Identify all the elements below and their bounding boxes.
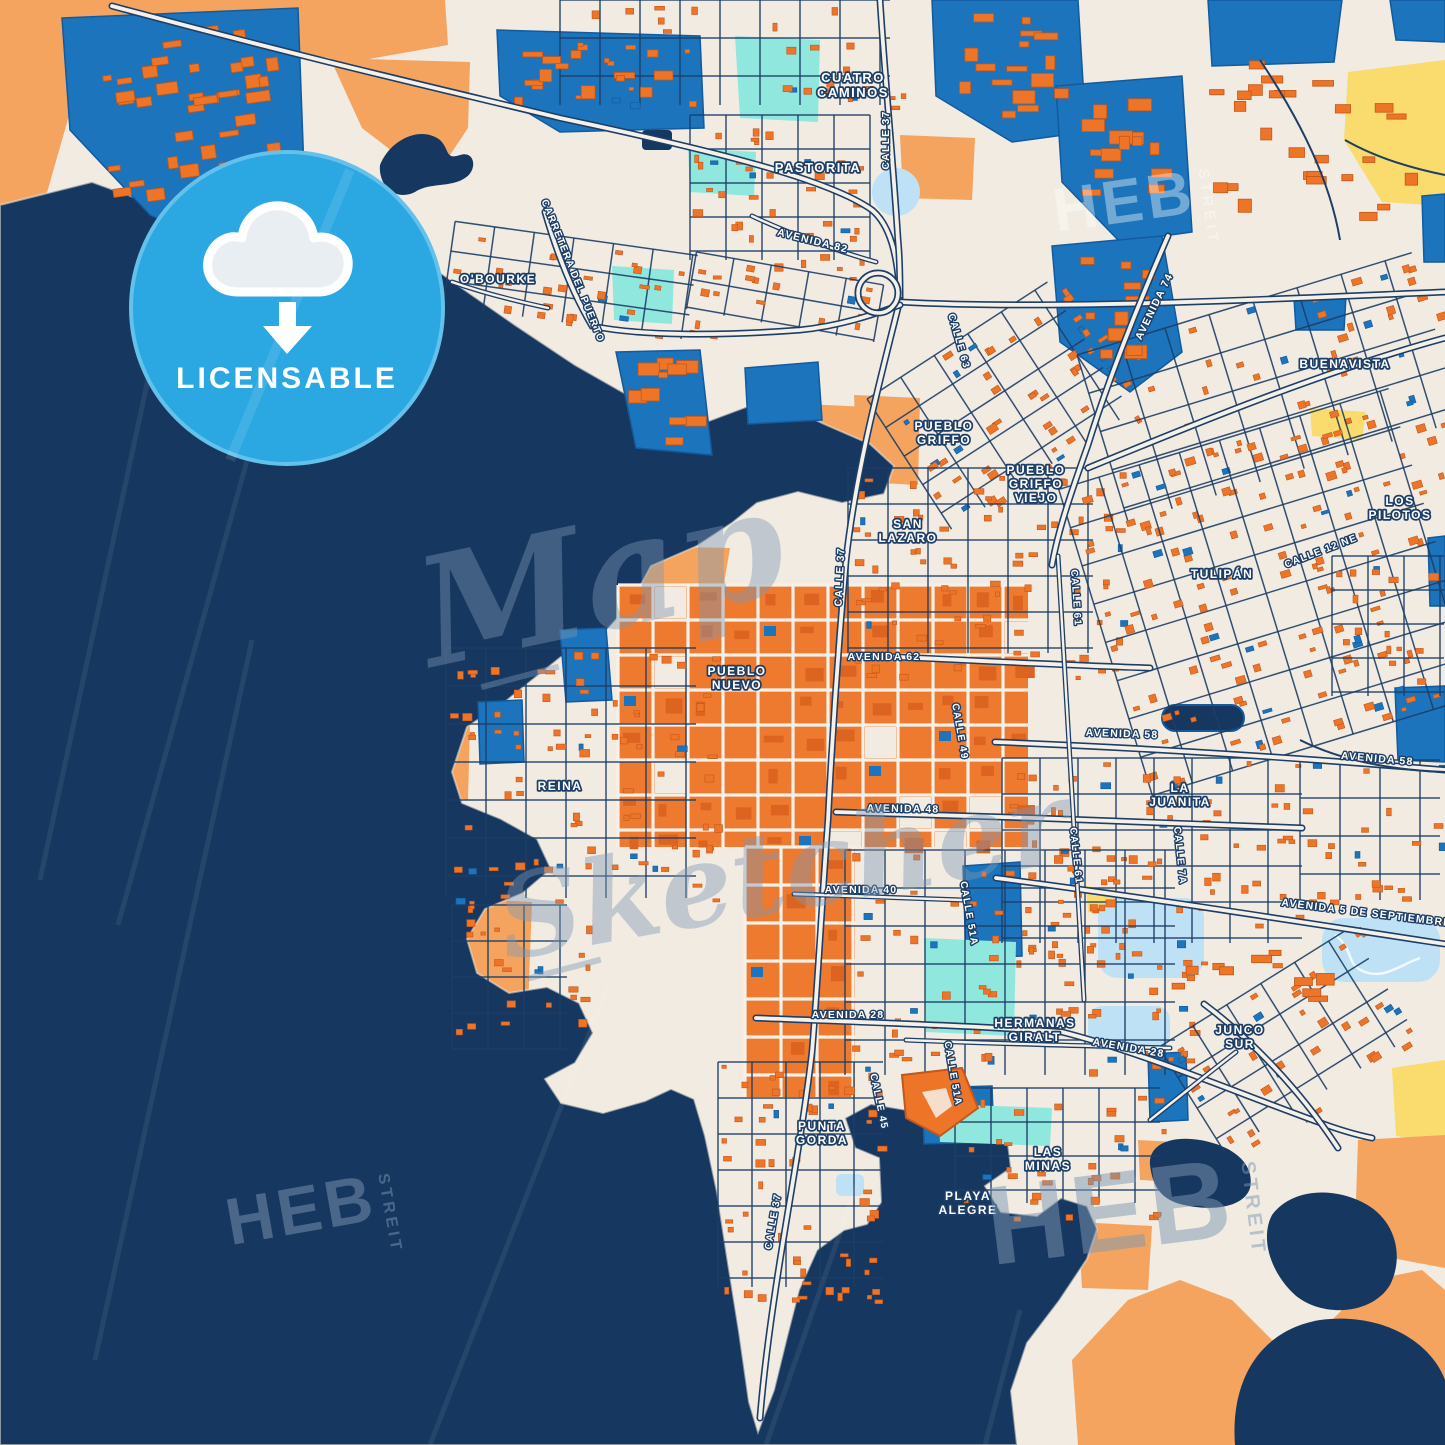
building — [578, 43, 583, 47]
building — [1259, 493, 1266, 500]
building — [866, 288, 872, 292]
map-canvas: CALLE 37AVENIDA 82CARRETERA DEL PUERTOAV… — [0, 0, 1445, 1445]
building — [1294, 978, 1312, 986]
building — [999, 507, 1003, 512]
building — [1337, 571, 1342, 577]
block — [865, 727, 896, 758]
building — [753, 129, 759, 137]
building — [634, 711, 639, 714]
building — [516, 745, 521, 749]
building — [558, 285, 567, 292]
building — [1127, 345, 1142, 355]
building — [1057, 954, 1063, 957]
building — [726, 1220, 733, 1223]
building — [979, 667, 997, 681]
building — [942, 586, 948, 592]
building — [850, 236, 856, 241]
building — [984, 989, 991, 994]
building — [156, 81, 179, 95]
map-label-pueblo-griffo-viejo: PUEBLOGRIFFOVIEJO — [1006, 463, 1065, 505]
building — [1129, 856, 1137, 864]
building — [867, 673, 877, 677]
building — [1416, 648, 1424, 653]
badge-label: LICENSABLE — [176, 362, 398, 395]
building — [241, 56, 254, 67]
building — [697, 704, 704, 712]
building — [1080, 655, 1089, 663]
building — [894, 930, 901, 935]
building — [769, 1160, 774, 1167]
building — [1115, 1136, 1124, 1142]
building — [1148, 862, 1156, 867]
building — [1025, 585, 1031, 592]
building — [895, 1050, 904, 1056]
building — [759, 1182, 763, 1189]
building — [495, 712, 501, 717]
building — [468, 1024, 476, 1030]
building — [505, 792, 511, 800]
building — [1303, 809, 1313, 814]
building — [1363, 157, 1375, 163]
map-label-reina: REINA — [538, 779, 583, 793]
building — [654, 71, 673, 80]
building — [1259, 744, 1266, 751]
building — [836, 767, 847, 780]
building — [581, 86, 595, 99]
building — [543, 287, 552, 295]
building — [758, 1295, 766, 1302]
building — [576, 679, 584, 686]
building — [746, 167, 753, 171]
building — [872, 626, 888, 638]
building — [908, 703, 923, 710]
building — [995, 911, 1003, 915]
building — [1313, 81, 1334, 87]
building — [979, 985, 986, 989]
building — [1269, 950, 1281, 955]
building — [629, 87, 634, 90]
building — [751, 138, 758, 141]
building — [867, 1216, 874, 1221]
building — [1029, 947, 1034, 954]
building — [479, 237, 486, 241]
building — [546, 1003, 551, 1008]
building — [976, 64, 995, 71]
building — [984, 615, 991, 621]
building — [659, 372, 668, 378]
building — [465, 825, 472, 830]
building — [713, 291, 719, 296]
building — [579, 1019, 587, 1027]
building — [1238, 199, 1251, 212]
building — [992, 80, 1012, 85]
building — [1234, 101, 1245, 111]
building — [1101, 350, 1113, 359]
building — [1181, 1051, 1188, 1057]
building — [1019, 41, 1028, 47]
building — [1175, 710, 1180, 715]
building — [1107, 1108, 1116, 1111]
building — [939, 731, 951, 741]
building — [1031, 73, 1053, 87]
building — [1358, 862, 1366, 866]
building — [1242, 886, 1249, 894]
building — [1375, 104, 1393, 113]
building — [996, 1139, 1001, 1144]
building — [1101, 880, 1107, 885]
building — [744, 1291, 752, 1298]
map-label-avenida-62: AVENIDA 62 — [848, 651, 921, 663]
building — [981, 1100, 985, 1108]
building — [1052, 942, 1057, 948]
building — [911, 936, 918, 944]
building — [612, 98, 620, 103]
building — [612, 734, 618, 739]
building — [631, 814, 641, 819]
building — [1153, 1012, 1159, 1020]
building — [743, 1212, 748, 1216]
building — [861, 936, 870, 941]
building — [921, 560, 926, 564]
building — [671, 735, 679, 740]
building — [1157, 859, 1161, 864]
building — [772, 1089, 780, 1096]
building — [1402, 897, 1411, 902]
building — [1397, 647, 1402, 651]
building — [1106, 900, 1116, 907]
map-label-pastorita: PASTORITA — [775, 160, 861, 175]
building — [641, 87, 653, 97]
building — [847, 296, 856, 304]
building — [892, 583, 900, 589]
building — [847, 43, 854, 49]
building — [689, 101, 696, 107]
building — [1065, 982, 1074, 986]
building — [537, 312, 545, 319]
building — [1412, 841, 1421, 845]
building — [624, 696, 636, 706]
building — [1142, 876, 1152, 879]
building — [823, 221, 832, 226]
building — [807, 739, 824, 751]
building — [1177, 941, 1185, 948]
building — [576, 96, 581, 99]
building — [865, 479, 873, 482]
building — [637, 745, 643, 749]
building — [1090, 905, 1097, 911]
building — [1014, 1110, 1024, 1116]
building — [1359, 532, 1364, 537]
building — [862, 599, 872, 602]
building — [820, 254, 829, 260]
building — [974, 14, 994, 22]
building — [931, 942, 938, 948]
building — [1429, 573, 1439, 580]
building — [1059, 959, 1066, 966]
building — [770, 209, 776, 216]
building — [974, 489, 984, 495]
building — [705, 775, 714, 782]
building — [837, 729, 855, 741]
building — [108, 165, 121, 172]
building — [974, 737, 986, 745]
building — [1253, 881, 1261, 886]
map-label-punta-gorda: PUNTAGORDA — [796, 1119, 848, 1147]
building — [1362, 828, 1369, 833]
building — [949, 591, 956, 594]
building — [1434, 824, 1443, 829]
building — [1234, 844, 1239, 848]
building — [873, 703, 892, 715]
building — [1184, 960, 1193, 965]
building — [481, 932, 486, 935]
building — [514, 690, 521, 698]
building — [867, 1295, 871, 1299]
building — [1143, 775, 1150, 783]
building — [984, 515, 991, 521]
building — [1389, 577, 1398, 583]
building — [804, 1226, 811, 1230]
building — [879, 588, 887, 591]
building — [677, 662, 685, 668]
building — [892, 621, 896, 625]
licensable-badge: LICENSABLE — [131, 152, 443, 464]
building — [678, 746, 688, 752]
building — [495, 928, 500, 931]
building — [1210, 90, 1224, 95]
building — [592, 11, 599, 19]
building — [1128, 974, 1133, 979]
building — [467, 932, 473, 937]
building — [1121, 620, 1128, 626]
building — [911, 550, 916, 555]
building — [1121, 857, 1126, 860]
building — [955, 617, 961, 621]
building — [456, 1029, 462, 1035]
building — [701, 289, 710, 297]
building — [710, 161, 717, 165]
building — [1157, 966, 1162, 970]
building — [1031, 652, 1040, 657]
building — [1205, 878, 1212, 886]
building — [1387, 646, 1391, 654]
building — [1439, 843, 1445, 851]
building — [1055, 89, 1069, 99]
building — [1026, 907, 1032, 913]
building — [901, 94, 906, 99]
building — [1186, 966, 1198, 974]
building — [838, 1293, 843, 1301]
building — [1052, 522, 1058, 528]
map-label-cuatro-caminos: CUATROCAMINOS — [817, 70, 889, 100]
building — [840, 1254, 848, 1257]
building — [103, 75, 112, 81]
building — [892, 1030, 897, 1037]
building — [1049, 951, 1055, 959]
building — [773, 283, 780, 291]
map-poster: CALLE 37AVENIDA 82CARRETERA DEL PUERTOAV… — [0, 0, 1445, 1445]
building — [1350, 570, 1356, 576]
building — [1179, 1006, 1187, 1011]
building — [638, 363, 659, 376]
building — [1360, 212, 1377, 220]
building — [855, 560, 864, 566]
building — [662, 656, 671, 663]
building — [1079, 517, 1083, 524]
building — [1022, 17, 1030, 24]
building — [597, 291, 605, 299]
building — [1256, 924, 1264, 928]
building — [756, 1160, 765, 1167]
building — [866, 1067, 871, 1071]
building — [1157, 1009, 1161, 1013]
building — [1364, 769, 1370, 774]
building — [873, 1289, 880, 1294]
building — [695, 321, 700, 329]
building — [1353, 595, 1358, 603]
building — [658, 772, 664, 776]
building — [1257, 845, 1266, 850]
building — [676, 752, 685, 757]
building — [626, 8, 634, 14]
building — [732, 225, 738, 231]
building — [571, 51, 581, 59]
building — [668, 364, 687, 375]
building — [708, 755, 717, 759]
building — [1023, 931, 1027, 936]
building — [1128, 99, 1151, 111]
building — [869, 766, 881, 776]
building — [1107, 856, 1115, 862]
building — [746, 265, 755, 272]
building — [1355, 628, 1362, 635]
building — [620, 737, 627, 744]
building — [995, 592, 999, 596]
building — [1389, 661, 1396, 666]
building — [1089, 1070, 1097, 1077]
map-label-avenida-28-w: AVENIDA 28 — [812, 1009, 885, 1021]
building — [658, 804, 666, 816]
building — [1007, 66, 1027, 71]
building — [1289, 148, 1305, 158]
building — [828, 930, 837, 941]
building — [692, 7, 698, 14]
building — [469, 735, 476, 740]
building — [1289, 840, 1295, 844]
building — [704, 694, 711, 697]
building — [1116, 953, 1120, 959]
building — [805, 668, 823, 681]
building — [951, 564, 957, 568]
building — [742, 1082, 748, 1088]
building — [554, 730, 560, 736]
building — [1214, 183, 1228, 193]
building — [1115, 312, 1128, 325]
building — [1088, 1014, 1096, 1018]
map-label-tulipan: TULIPÁN — [1191, 566, 1254, 581]
building — [900, 674, 909, 680]
building — [1261, 128, 1272, 140]
building — [1356, 895, 1361, 900]
building — [910, 482, 916, 489]
building — [787, 47, 796, 54]
building — [666, 698, 683, 713]
building — [495, 730, 502, 733]
building — [1372, 570, 1379, 575]
building — [514, 731, 519, 735]
building — [759, 1117, 765, 1122]
building — [175, 131, 194, 142]
building — [1278, 839, 1286, 843]
building — [800, 627, 814, 634]
building — [1273, 963, 1283, 967]
building — [679, 271, 685, 275]
building — [698, 162, 703, 169]
building — [1247, 761, 1251, 766]
building — [507, 1001, 515, 1008]
building — [826, 1287, 834, 1294]
building — [1385, 631, 1389, 637]
building — [1045, 56, 1054, 70]
building — [235, 113, 256, 126]
building — [1015, 630, 1024, 635]
building — [1342, 467, 1348, 473]
building — [800, 697, 812, 706]
building — [115, 90, 135, 103]
building — [768, 769, 777, 784]
building — [259, 76, 269, 87]
building — [685, 416, 706, 426]
building — [1316, 973, 1334, 985]
building — [917, 635, 927, 641]
building — [829, 1086, 835, 1089]
building — [167, 156, 178, 169]
building — [685, 49, 690, 53]
building — [804, 88, 812, 94]
map-label-calle-37-n: CALLE 37 — [880, 110, 892, 169]
building — [1219, 967, 1233, 975]
building — [829, 1104, 834, 1109]
building — [556, 63, 569, 68]
building — [977, 592, 989, 607]
building — [1138, 1096, 1146, 1100]
building — [975, 696, 989, 708]
building — [1355, 851, 1360, 858]
building — [783, 86, 792, 92]
building — [812, 1106, 818, 1113]
building — [581, 997, 590, 1002]
building — [1124, 283, 1140, 290]
building — [969, 1147, 974, 1152]
building — [592, 709, 598, 716]
building — [985, 1053, 992, 1061]
building — [1385, 886, 1393, 890]
building — [864, 1190, 872, 1194]
building — [1108, 1057, 1117, 1062]
building — [892, 106, 900, 110]
building — [713, 276, 721, 279]
building — [1308, 840, 1317, 847]
building — [501, 1022, 510, 1026]
building — [655, 285, 662, 290]
building — [463, 713, 472, 720]
building — [837, 267, 842, 270]
building — [1004, 1143, 1012, 1146]
building — [916, 548, 921, 554]
building — [1034, 33, 1058, 40]
building — [1303, 989, 1321, 997]
building — [722, 1065, 726, 1068]
